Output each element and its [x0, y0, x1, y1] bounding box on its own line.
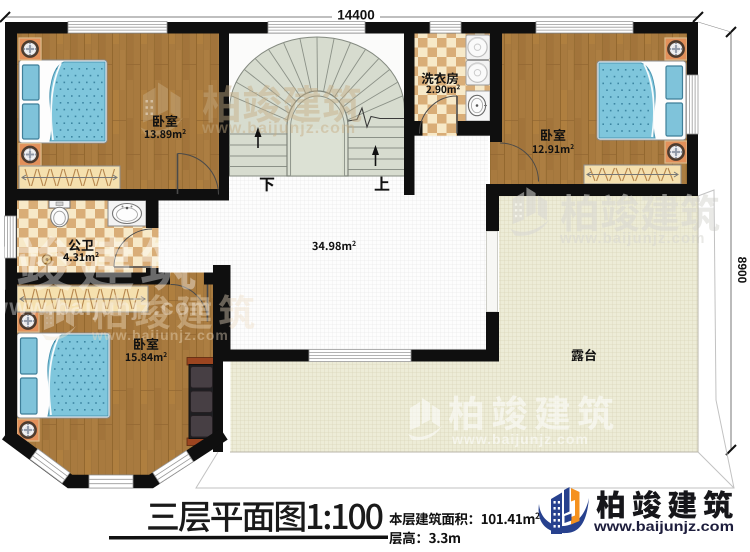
svg-text:www.baijunjz.com: www.baijunjz.com [593, 518, 734, 534]
svg-text:14400: 14400 [337, 8, 375, 23]
svg-text:柏竣建筑: 柏竣建筑 [0, 234, 202, 297]
svg-text:www.baijunjz.com: www.baijunjz.com [559, 230, 705, 247]
svg-text:www.baijunjz.com: www.baijunjz.com [451, 431, 589, 447]
svg-text:www.baijunjz.com: www.baijunjz.com [201, 120, 356, 137]
svg-text:8900: 8900 [735, 257, 749, 284]
svg-text:www.baijunjz.com: www.baijunjz.com [91, 327, 229, 343]
